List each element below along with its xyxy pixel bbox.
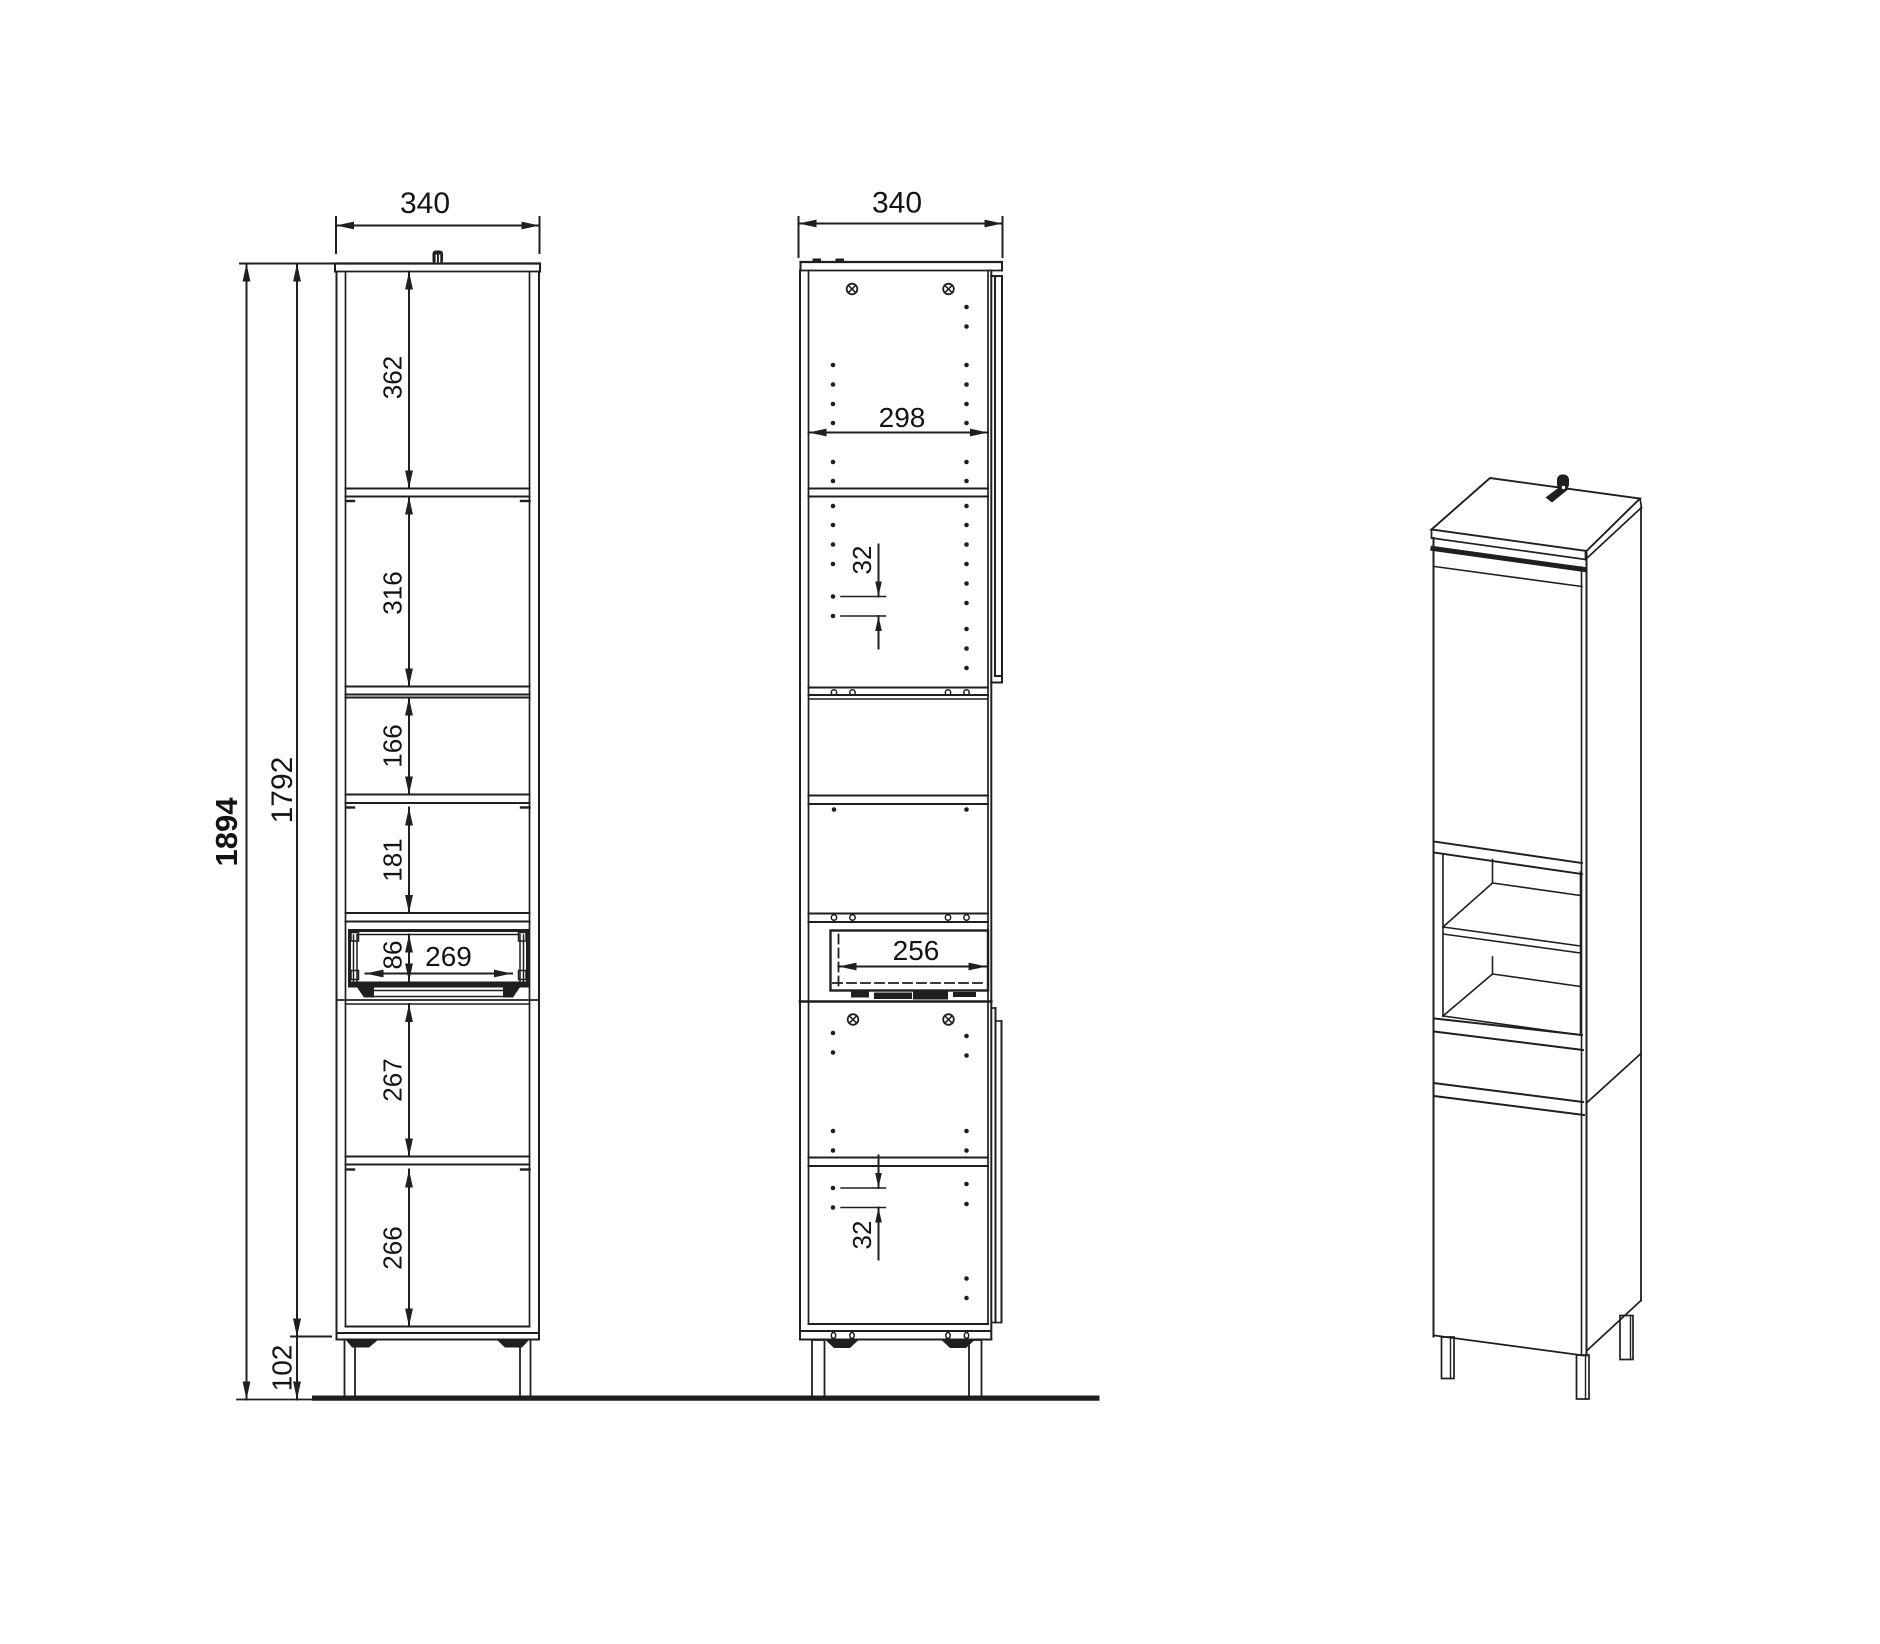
svg-text:181: 181 bbox=[377, 838, 407, 881]
svg-text:256: 256 bbox=[893, 935, 940, 966]
svg-text:316: 316 bbox=[377, 571, 407, 614]
svg-text:32: 32 bbox=[847, 1221, 877, 1250]
svg-text:86: 86 bbox=[377, 941, 407, 970]
svg-text:166: 166 bbox=[377, 724, 407, 767]
svg-text:266: 266 bbox=[377, 1226, 407, 1269]
svg-text:340: 340 bbox=[872, 186, 922, 219]
svg-text:298: 298 bbox=[879, 402, 926, 433]
svg-text:362: 362 bbox=[377, 356, 407, 399]
svg-text:32: 32 bbox=[847, 546, 877, 575]
svg-text:1894: 1894 bbox=[209, 797, 244, 867]
svg-text:102: 102 bbox=[266, 1345, 297, 1392]
svg-text:1792: 1792 bbox=[266, 757, 299, 824]
svg-text:269: 269 bbox=[425, 941, 472, 972]
svg-text:340: 340 bbox=[400, 187, 450, 220]
svg-text:267: 267 bbox=[377, 1058, 407, 1101]
